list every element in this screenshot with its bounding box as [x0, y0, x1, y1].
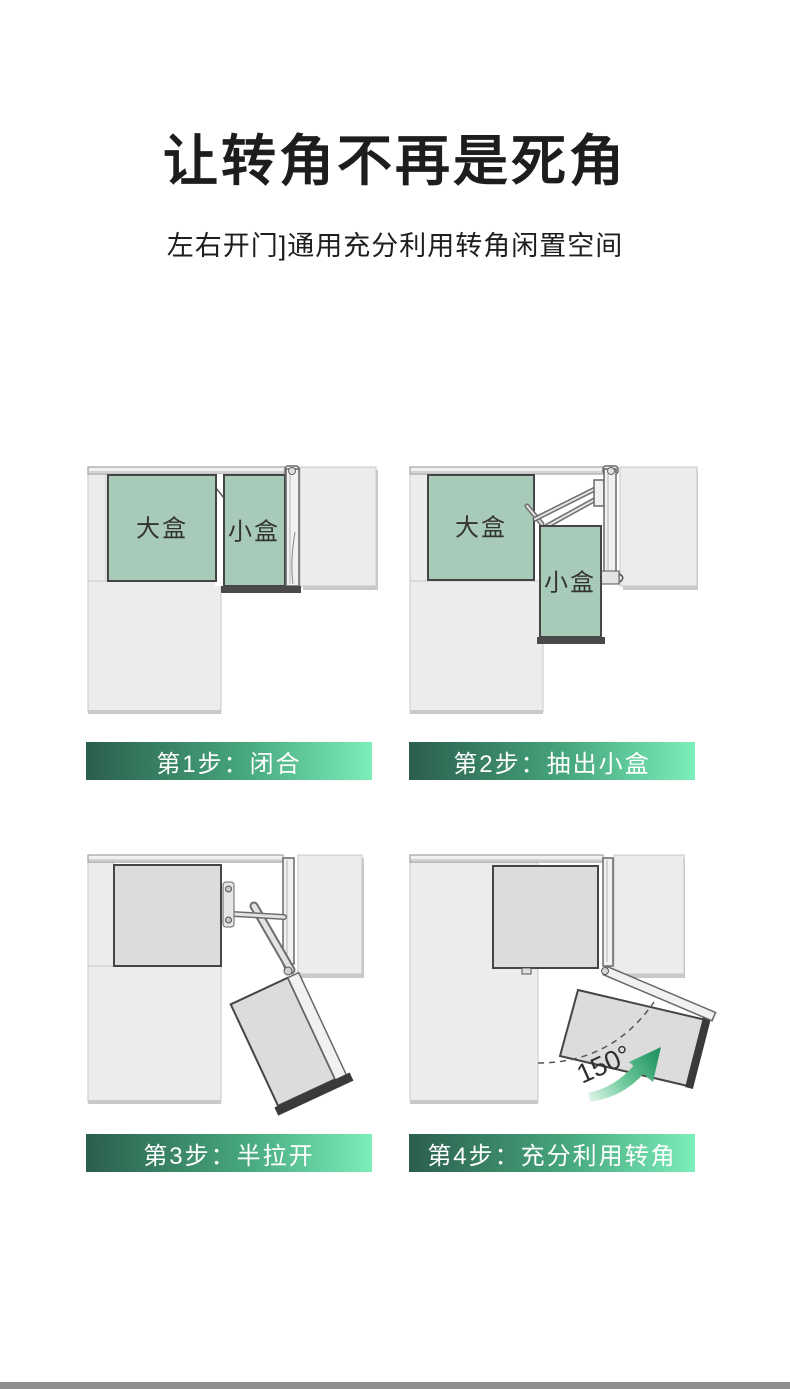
door-track [603, 858, 613, 966]
small-box-label: 小盒 [544, 569, 596, 596]
door-bracket [601, 571, 619, 584]
big-box: 大盒 [428, 475, 534, 580]
page-subtitle: 左右开门]通用充分利用转角闲置空间 [0, 224, 790, 263]
side-cabinet [620, 467, 698, 590]
threshold-bar [537, 637, 605, 644]
step-1-diagram: 大盒 小盒 [86, 462, 378, 723]
top-rail [410, 467, 607, 474]
latch-icon [522, 968, 531, 974]
pivot-joint [226, 886, 232, 892]
door-hinge-icon [289, 468, 296, 475]
step-4-label: 第4步：充分利用转角 [409, 1134, 695, 1172]
side-cabinet [300, 467, 378, 590]
linkage-arm [527, 480, 605, 526]
top-rail [88, 467, 285, 474]
big-box [114, 865, 221, 966]
big-box-label: 大盒 [136, 515, 188, 542]
top-rail [88, 855, 283, 862]
big-box [493, 866, 598, 974]
bottom-divider [0, 1382, 790, 1389]
step-2-label: 第2步：抽出小盒 [409, 742, 695, 780]
cabinet-door [285, 466, 299, 586]
small-box-label: 小盒 [228, 518, 280, 545]
top-rail [410, 855, 603, 862]
page: 让转角不再是死角 左右开门]通用充分利用转角闲置空间 大盒 [0, 0, 790, 1389]
small-box: 小盒 [224, 475, 285, 586]
door-hinge-icon [602, 968, 609, 975]
page-title: 让转角不再是死角 [0, 128, 790, 194]
step-2-diagram: 大盒 小盒 [408, 462, 700, 723]
big-box-label: 大盒 [455, 514, 507, 541]
small-box: 小盒 [540, 526, 601, 637]
swing-box [227, 971, 353, 1116]
door-hinge-icon [608, 468, 615, 475]
pivot-joint [226, 917, 232, 923]
step-3-diagram [86, 850, 378, 1125]
step-4-diagram: 150° [404, 850, 720, 1125]
side-cabinet [614, 855, 685, 978]
threshold-bar [221, 586, 301, 593]
step-3-label: 第3步：半拉开 [86, 1134, 372, 1172]
linkage-arm [223, 882, 291, 970]
big-box: 大盒 [108, 475, 216, 581]
pivot-joint [284, 967, 292, 975]
step-1-label: 第1步：闭合 [86, 742, 372, 780]
side-cabinet [298, 855, 364, 978]
